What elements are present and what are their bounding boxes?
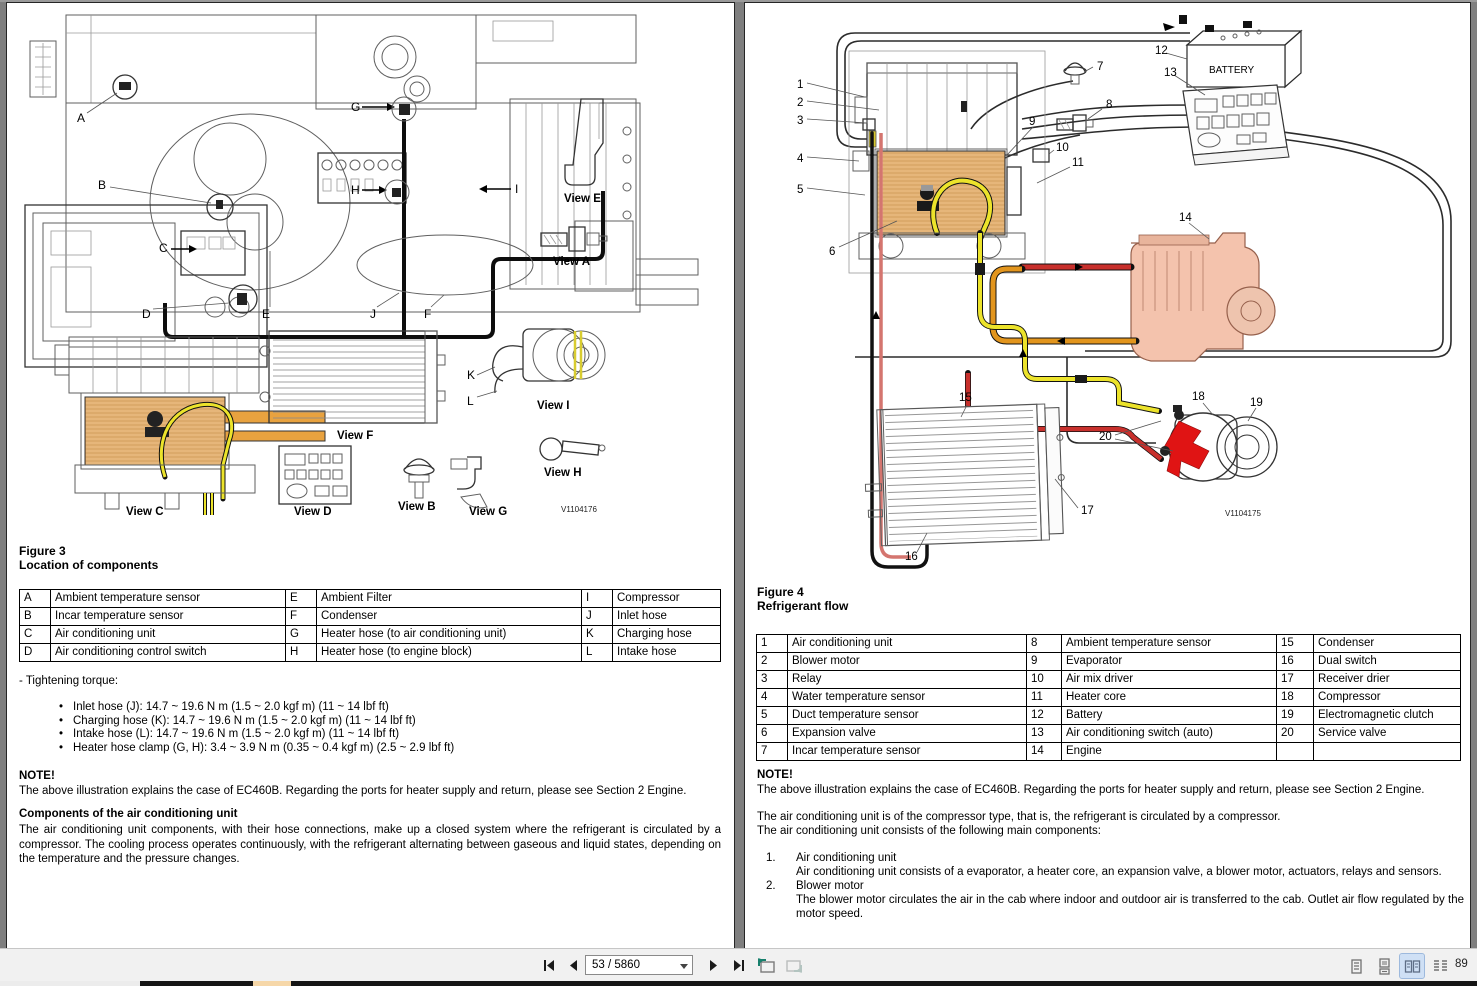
table-desc-cell: Air mix driver	[1062, 671, 1277, 689]
list-item-text: The blower motor circulates the air in t…	[796, 893, 1464, 921]
two-page-continuous-view-button[interactable]	[1428, 954, 1452, 978]
page-number-combobox[interactable]: 53 / 5860	[585, 955, 693, 975]
view-e-caption: View E	[564, 193, 601, 205]
table-key-cell	[1277, 743, 1314, 761]
callout-i: I	[515, 182, 518, 196]
table-key-cell: 17	[1277, 671, 1314, 689]
callout-d: D	[142, 307, 151, 321]
callout-8: 8	[1106, 99, 1112, 111]
callout-7: 7	[1097, 61, 1103, 73]
battery-illustration: BATTERY	[1163, 15, 1301, 87]
two-page-view-button[interactable]	[1400, 954, 1424, 978]
figure3-diagram: A B C D E J F G H	[15, 7, 731, 535]
taskbar-edge-dark	[140, 981, 1477, 986]
table-desc-cell: Heater hose (to air conditioning unit)	[317, 626, 582, 644]
figure4-heading: Figure 4 Refrigerant flow	[757, 585, 848, 613]
table-row: 5Duct temperature sensor12Battery19Elect…	[757, 707, 1461, 725]
list-item-title: Blower motor	[796, 879, 1464, 893]
table-key-cell: 12	[1027, 707, 1062, 725]
view-g-part: View G	[451, 457, 507, 518]
compressor-illustration	[1160, 405, 1277, 481]
table-row: CAir conditioning unitGHeater hose (to a…	[20, 626, 721, 644]
callout-12: 12	[1155, 45, 1168, 57]
battery-label: BATTERY	[1209, 65, 1255, 76]
table-desc-cell: Incar temperature sensor	[788, 743, 1027, 761]
pdf-navigation-toolbar: 53 / 5860 89	[0, 948, 1477, 981]
table-row: 4Water temperature sensor11Heater core18…	[757, 689, 1461, 707]
callout-18: 18	[1192, 391, 1205, 403]
list-item-title: Air conditioning unit	[796, 851, 1464, 865]
table-desc-cell: Inlet hose	[613, 608, 721, 626]
callout-3: 3	[797, 115, 803, 127]
machine-top-view	[25, 15, 698, 367]
view-h-part: View H	[540, 438, 605, 479]
list-item-number: 2.	[766, 879, 796, 921]
view-f-part: View F	[260, 331, 445, 442]
table-desc-cell: Water temperature sensor	[788, 689, 1027, 707]
next-view-button[interactable]	[782, 954, 804, 976]
table-key-cell: 19	[1277, 707, 1314, 725]
view-e-part: View E	[564, 99, 603, 205]
figure3-label: Figure 3	[19, 544, 158, 558]
table-desc-cell: Incar temperature sensor	[51, 608, 286, 626]
taskbar-highlight	[253, 981, 291, 986]
table-key-cell: J	[582, 608, 613, 626]
callout-11: 11	[1072, 157, 1084, 169]
table-key-cell: 7	[757, 743, 788, 761]
table-desc-cell: Compressor	[613, 590, 721, 608]
table-desc-cell: Receiver drier	[1314, 671, 1461, 689]
previous-view-button[interactable]	[755, 954, 777, 976]
manual-page-left: A B C D E J F G H	[6, 2, 735, 949]
table-key-cell: 5	[757, 707, 788, 725]
callout-10: 10	[1056, 142, 1069, 154]
callout-c: C	[159, 241, 168, 255]
table-key-cell: 9	[1027, 653, 1062, 671]
callout-15: 15	[959, 392, 972, 404]
taskbar-edge	[0, 981, 1477, 986]
table-key-cell: 2	[757, 653, 788, 671]
torque-heading: - Tightening torque:	[19, 674, 118, 689]
callout-17: 17	[1081, 505, 1094, 517]
table-desc-cell: Duct temperature sensor	[788, 707, 1027, 725]
table-desc-cell: Expansion valve	[788, 725, 1027, 743]
table-desc-cell: Intake hose	[613, 644, 721, 662]
view-f-caption: View F	[337, 430, 373, 442]
table-desc-cell: Ambient temperature sensor	[1062, 635, 1277, 653]
incar-sensor-part	[1064, 63, 1086, 84]
table-desc-cell: Air conditioning switch (auto)	[1062, 725, 1277, 743]
table-desc-cell: Charging hose	[613, 626, 721, 644]
section-heading: Components of the air conditioning unit	[19, 807, 237, 822]
page-number-value[interactable]: 53 / 5860	[592, 959, 640, 971]
pdf-viewer-canvas: A B C D E J F G H	[0, 0, 1477, 948]
table-key-cell: 15	[1277, 635, 1314, 653]
callout-5: 5	[797, 184, 803, 196]
first-page-button[interactable]	[538, 954, 560, 976]
table-row: 1Air conditioning unit8Ambient temperatu…	[757, 635, 1461, 653]
callout-a: A	[77, 111, 85, 125]
table-key-cell: I	[582, 590, 613, 608]
table-desc-cell: Ambient Filter	[317, 590, 582, 608]
figure3-id: V1104176	[561, 505, 597, 514]
table-desc-cell: Service valve	[1314, 725, 1461, 743]
figure3-heading: Figure 3 Location of components	[19, 544, 158, 572]
callout-16: 16	[905, 551, 918, 563]
figure4-label: Figure 4	[757, 585, 848, 599]
view-d-caption: View D	[294, 506, 332, 518]
table-desc-cell: Electromagnetic clutch	[1314, 707, 1461, 725]
table-desc-cell	[1314, 743, 1461, 761]
single-page-view-button[interactable]	[1344, 954, 1368, 978]
table-desc-cell: Air conditioning unit	[788, 635, 1027, 653]
table-row: 7Incar temperature sensor14Engine	[757, 743, 1461, 761]
view-g-caption: View G	[469, 506, 507, 518]
note-text-right: The above illustration explains the case…	[757, 783, 1462, 798]
table-desc-cell: Battery	[1062, 707, 1277, 725]
torque-item: Heater hose clamp (G, H): 3.4 ~ 3.9 N m …	[73, 742, 763, 756]
table-row: DAir conditioning control switchHHeater …	[20, 644, 721, 662]
callout-e: E	[262, 307, 270, 321]
view-a-caption: View A	[553, 256, 590, 268]
callout-l: L	[467, 394, 474, 408]
next-page-button[interactable]	[702, 954, 724, 976]
figure4-id: V1104175	[1225, 509, 1261, 518]
table-desc-cell: Engine	[1062, 743, 1277, 761]
figure3-title: Location of components	[19, 558, 158, 572]
table-key-cell: H	[286, 644, 317, 662]
callout-2: 2	[797, 97, 803, 109]
callout-g: G	[351, 100, 360, 114]
torque-item: Intake hose (L): 14.7 ~ 19.6 N m (1.5 ~ …	[73, 728, 763, 742]
table-key-cell: D	[20, 644, 51, 662]
callout-9: 9	[1029, 116, 1035, 128]
callout-h: H	[351, 183, 360, 197]
callout-13: 13	[1164, 67, 1177, 79]
table-desc-cell: Air conditioning unit	[51, 626, 286, 644]
previous-page-button[interactable]	[562, 954, 584, 976]
main-components-paragraph: The air conditioning unit consists of th…	[757, 824, 1462, 839]
table-row: 2Blower motor9Evaporator16Dual switch	[757, 653, 1461, 671]
zoom-level: 89	[1455, 958, 1468, 970]
table-key-cell: 13	[1027, 725, 1062, 743]
relay-part	[863, 119, 875, 130]
components-table-fig3: AAmbient temperature sensorEAmbient Filt…	[19, 589, 721, 662]
components-table-fig4: 1Air conditioning unit8Ambient temperatu…	[756, 634, 1461, 761]
table-key-cell: 10	[1027, 671, 1062, 689]
view-b-caption: View B	[398, 501, 436, 513]
view-h-caption: View H	[544, 467, 582, 479]
list-item-text: Air conditioning unit consists of a evap…	[796, 865, 1464, 879]
table-key-cell: 18	[1277, 689, 1314, 707]
view-d-part: View D	[279, 446, 351, 518]
callout-f: F	[424, 307, 431, 321]
torque-list: Inlet hose (J): 14.7 ~ 19.6 N m (1.5 ~ 2…	[19, 701, 763, 755]
table-row: BIncar temperature sensorFCondenserJInle…	[20, 608, 721, 626]
callout-19: 19	[1250, 397, 1263, 409]
callout-j: J	[370, 307, 376, 321]
table-key-cell: C	[20, 626, 51, 644]
condenser-illustration	[863, 403, 1067, 546]
combobox-dropdown-arrow[interactable]	[680, 964, 688, 969]
table-desc-cell: Evaporator	[1062, 653, 1277, 671]
table-key-cell: B	[20, 608, 51, 626]
figure3-callouts: A B C D E J F G H	[77, 75, 533, 321]
callout-14: 14	[1179, 212, 1192, 224]
note-heading-right: NOTE!	[757, 768, 793, 783]
compressor-type-paragraph: The air conditioning unit is of the comp…	[757, 810, 1462, 825]
note-heading: NOTE!	[19, 769, 55, 784]
table-desc-cell: Condenser	[1314, 635, 1461, 653]
table-key-cell: G	[286, 626, 317, 644]
view-b-part: View B	[398, 459, 436, 513]
table-row: 3Relay10Air mix driver17Receiver drier	[757, 671, 1461, 689]
list-item: 2. Blower motor The blower motor circula…	[766, 879, 1464, 921]
ac-unit-illustration	[849, 51, 1045, 273]
table-key-cell: L	[582, 644, 613, 662]
table-key-cell: 11	[1027, 689, 1062, 707]
note-text: The above illustration explains the case…	[19, 784, 721, 799]
continuous-view-button[interactable]	[1372, 954, 1396, 978]
table-key-cell: 3	[757, 671, 788, 689]
last-page-button[interactable]	[727, 954, 749, 976]
components-numbered-list: 1. Air conditioning unit Air conditionin…	[766, 851, 1464, 921]
manual-page-right: BATTERY	[744, 2, 1471, 949]
air-mix-driver-part	[1033, 149, 1049, 162]
table-key-cell: K	[582, 626, 613, 644]
table-row: AAmbient temperature sensorEAmbient Filt…	[20, 590, 721, 608]
table-desc-cell: Compressor	[1314, 689, 1461, 707]
table-desc-cell: Heater core	[1062, 689, 1277, 707]
table-key-cell: E	[286, 590, 317, 608]
table-key-cell: A	[20, 590, 51, 608]
table-desc-cell: Air conditioning control switch	[51, 644, 286, 662]
table-key-cell: 20	[1277, 725, 1314, 743]
callout-k: K	[467, 368, 475, 382]
callout-b: B	[98, 178, 106, 192]
table-desc-cell: Condenser	[317, 608, 582, 626]
table-key-cell: 8	[1027, 635, 1062, 653]
callout-1: 1	[797, 79, 803, 91]
table-desc-cell: Heater hose (to engine block)	[317, 644, 582, 662]
table-key-cell: 6	[757, 725, 788, 743]
table-key-cell: 14	[1027, 743, 1062, 761]
figure4-title: Refrigerant flow	[757, 599, 848, 613]
view-i-caption: View I	[537, 400, 569, 412]
figure4-diagram: BATTERY	[775, 11, 1475, 577]
view-c-caption: View C	[126, 506, 164, 518]
list-item: 1. Air conditioning unit Air conditionin…	[766, 851, 1464, 879]
table-row: 6Expansion valve13Air conditioning switc…	[757, 725, 1461, 743]
table-desc-cell: Dual switch	[1314, 653, 1461, 671]
table-key-cell: 1	[757, 635, 788, 653]
section-text: The air conditioning unit components, wi…	[19, 823, 721, 867]
engine-illustration	[1131, 233, 1275, 361]
list-item-number: 1.	[766, 851, 796, 879]
callout-4: 4	[797, 153, 804, 165]
callout-20: 20	[1099, 431, 1112, 443]
view-i-part: K L View I	[467, 329, 605, 412]
control-panel-illustration	[1183, 85, 1289, 165]
table-desc-cell: Ambient temperature sensor	[51, 590, 286, 608]
torque-item: Charging hose (K): 14.7 ~ 19.6 N m (1.5 …	[73, 715, 763, 729]
callout-6: 6	[829, 246, 835, 258]
table-key-cell: 4	[757, 689, 788, 707]
table-key-cell: F	[286, 608, 317, 626]
table-key-cell: 16	[1277, 653, 1314, 671]
torque-item: Inlet hose (J): 14.7 ~ 19.6 N m (1.5 ~ 2…	[73, 701, 763, 715]
table-desc-cell: Blower motor	[788, 653, 1027, 671]
table-desc-cell: Relay	[788, 671, 1027, 689]
